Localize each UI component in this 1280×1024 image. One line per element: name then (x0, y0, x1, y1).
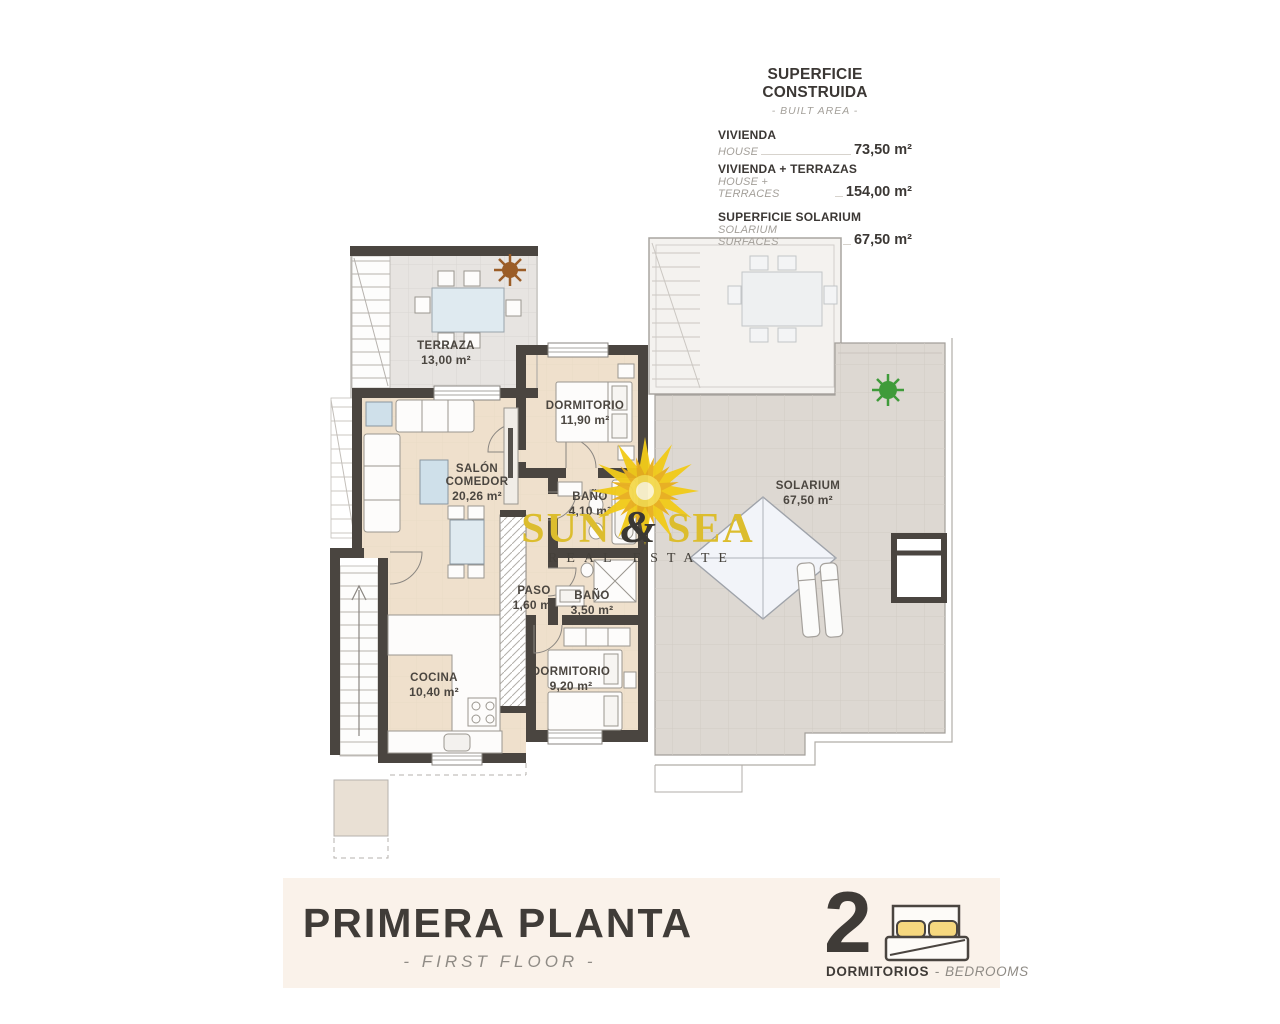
leader-line (761, 154, 851, 155)
brand-ampersand: & (611, 501, 667, 552)
footer-band: PRIMERA PLANTA - FIRST FLOOR - 2 DORMITO… (283, 878, 1000, 988)
room-label-dormitorio-2: DORMITORIO 9,20 m² (532, 666, 611, 693)
dining-table (450, 520, 484, 564)
nightstand (624, 672, 636, 688)
table-title: SUPERFICIE CONSTRUIDA (718, 66, 912, 102)
bedrooms-count: 2 (824, 882, 872, 964)
room-label-cocina: COCINA 10,40 m² (409, 672, 459, 699)
room-label-bano-2: BAÑO 3,50 m² (571, 590, 614, 617)
leader-line (843, 244, 851, 245)
table-row: VIVIENDA + TERRAZAS HOUSE + TERRACES 154… (718, 162, 912, 200)
closet (564, 628, 630, 646)
table-subtitle: - BUILT AREA - (718, 105, 912, 117)
brand-word: SUN (521, 506, 611, 552)
room-label-salon-comedor: SALÓN COMEDOR 20,26 m² (434, 463, 520, 503)
double-bed-icon (883, 904, 971, 964)
floor-subtitle: - FIRST FLOOR - (403, 952, 596, 972)
built-area-table: SUPERFICIE CONSTRUIDA - BUILT AREA - VIV… (718, 66, 912, 248)
table-row: VIVIENDA HOUSE 73,50 m² (718, 128, 912, 158)
leader-line (835, 196, 843, 197)
floor-title: PRIMERA PLANTA (303, 900, 693, 947)
stair-landing (334, 780, 388, 836)
room-label-dormitorio-1: DORMITORIO 11,90 m² (546, 400, 625, 427)
terrace-table (432, 288, 504, 332)
watermark-brand: SUN&SEA (521, 505, 755, 551)
table-row: SUPERFICIE SOLARIUM SOLARIUM SURFACES 67… (718, 210, 912, 248)
watermark-tagline: REAL ESTATE (548, 551, 736, 567)
brand-word: SEA (667, 506, 755, 552)
room-label-paso: PASO 1,60 m² (513, 585, 556, 612)
floor-plan-page: TERRAZA 13,00 m² DORMITORIO 11,90 m² SAL… (0, 0, 1280, 1024)
room-label-solarium: SOLARIUM 67,50 m² (776, 480, 841, 507)
bedrooms-label: DORMITORIOS - BEDROOMS (826, 964, 1029, 979)
room-label-terraza: TERRAZA 13,00 m² (417, 340, 475, 367)
stair-bulkhead (892, 536, 946, 600)
kitchen-sink (444, 734, 470, 751)
